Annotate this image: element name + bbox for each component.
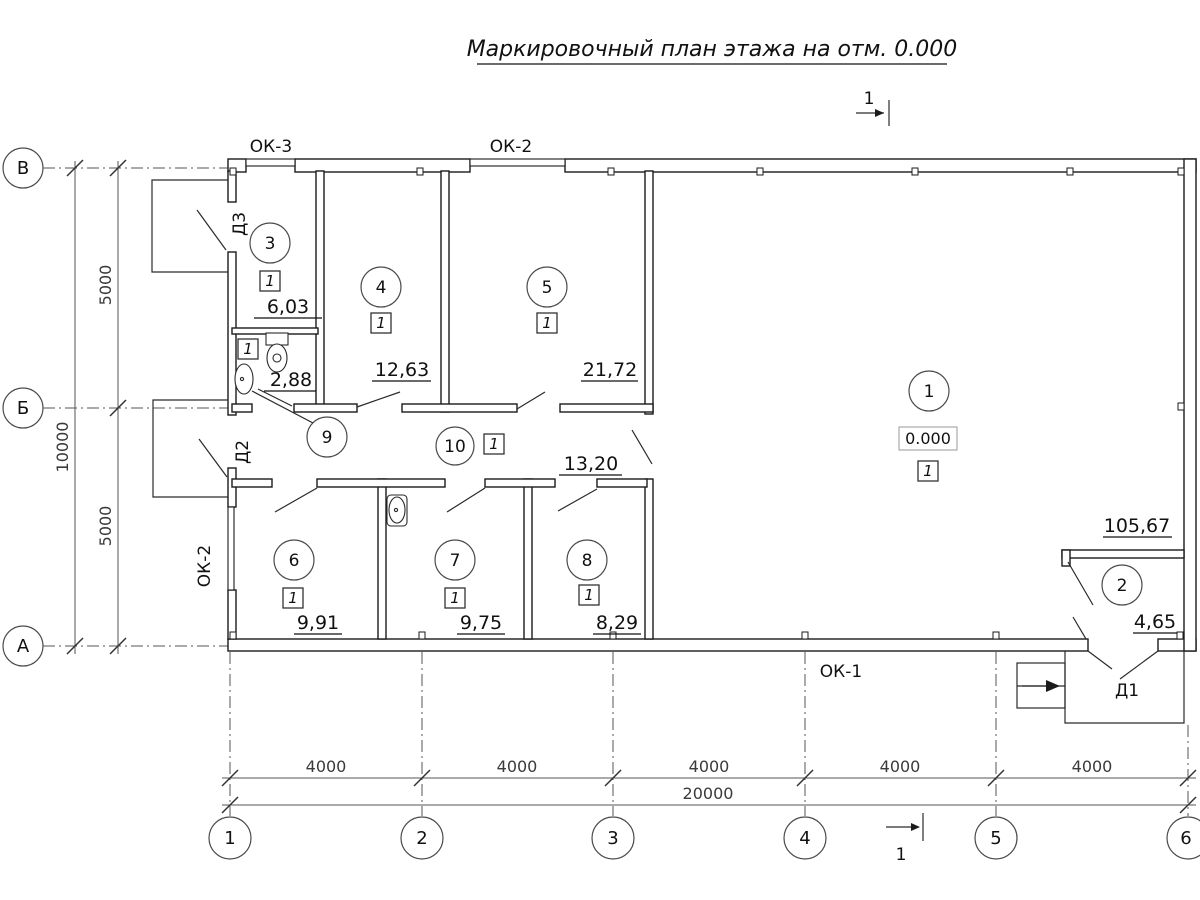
room-10-number: 10 xyxy=(444,437,466,457)
door-d2-leaf xyxy=(199,439,227,477)
dim-20000: 20000 xyxy=(683,784,734,803)
drawing-title: Маркировочный план этажа на отм. 0.000 xyxy=(467,37,958,62)
door-room4-leaf xyxy=(357,392,400,407)
dim-4000-1: 4000 xyxy=(306,757,347,776)
door-d3-leaf xyxy=(197,210,226,250)
axis-face-markers xyxy=(230,168,1184,639)
sink-room7-icon xyxy=(387,495,407,526)
axis-col-5-label: 5 xyxy=(990,828,1001,849)
room-2-area: 4,65 xyxy=(1134,611,1176,633)
room-10-area: 13,20 xyxy=(564,453,618,475)
room-8-finish: 1 xyxy=(584,586,594,604)
dim-4000-4: 4000 xyxy=(880,757,921,776)
room-9-area: 2,88 xyxy=(270,369,312,391)
room-7-number: 7 xyxy=(450,551,461,571)
axis-row-b-label: Б xyxy=(17,398,29,419)
door-room8-leaf xyxy=(558,489,597,511)
door-leaves xyxy=(197,210,1158,679)
section-mark-top-label: 1 xyxy=(864,89,875,109)
room-7-area: 9,75 xyxy=(460,612,502,634)
room-3-finish: 1 xyxy=(265,272,275,290)
elevation-value: 0.000 xyxy=(905,429,951,448)
room-9-finish: 1 xyxy=(243,340,253,358)
door-d1-leaf-right xyxy=(1120,651,1158,679)
dim-5000-bottom: 5000 xyxy=(96,506,115,547)
axis-col-4-label: 4 xyxy=(799,828,810,849)
room-10-finish: 1 xyxy=(489,435,499,453)
axis-col-2-label: 2 xyxy=(416,828,427,849)
room-3-number: 3 xyxy=(265,234,276,254)
room-4-area: 12,63 xyxy=(375,359,429,381)
door-d1-leaf-left xyxy=(1088,651,1112,669)
dim-5000-top: 5000 xyxy=(96,265,115,306)
sink-wc-icon xyxy=(235,364,253,394)
walls xyxy=(228,159,1196,651)
label-d2: Д2 xyxy=(233,440,253,464)
label-ok3: ОК-3 xyxy=(250,137,292,157)
window-ok2-left xyxy=(228,507,234,590)
room-6-number: 6 xyxy=(289,551,300,571)
entrance-steps xyxy=(1017,663,1065,708)
dim-10000: 10000 xyxy=(53,422,72,473)
door-room1-room2-leaf xyxy=(1068,562,1093,605)
room-2-number: 2 xyxy=(1117,576,1128,596)
floor-plan-drawing: Маркировочный план этажа на отм. 0.000 1 xyxy=(0,0,1200,900)
window-ok2-top xyxy=(470,159,565,166)
section-mark-bottom-label: 1 xyxy=(896,845,907,865)
door-room1-room2-jamb xyxy=(1073,617,1086,639)
room-8-number: 8 xyxy=(582,551,593,571)
room-6-finish: 1 xyxy=(288,589,298,607)
axis-col-6-label: 6 xyxy=(1180,828,1191,849)
door-room5-leaf xyxy=(517,392,545,409)
room-7-finish: 1 xyxy=(450,589,460,607)
label-ok1: ОК-1 xyxy=(820,662,862,682)
room-6-area: 9,91 xyxy=(297,612,339,634)
dim-4000-2: 4000 xyxy=(497,757,538,776)
door-room6-leaf xyxy=(275,488,317,512)
label-ok2-left: ОК-2 xyxy=(195,545,215,587)
door-room7-leaf xyxy=(447,488,485,512)
dim-4000-3: 4000 xyxy=(689,757,730,776)
label-d1: Д1 xyxy=(1115,681,1139,701)
door-corridor-room1-leaf xyxy=(632,430,652,464)
room-3-area: 6,03 xyxy=(267,296,309,318)
room-4-finish: 1 xyxy=(376,314,386,332)
entrance-arrow-icon xyxy=(1046,680,1060,692)
room-8-area: 8,29 xyxy=(596,612,638,634)
section-arrow-bottom-icon xyxy=(911,823,920,831)
room-1-finish: 1 xyxy=(923,462,933,480)
label-ok2-top: ОК-2 xyxy=(490,137,532,157)
porch-upper-left xyxy=(152,180,228,272)
room-1-area: 105,67 xyxy=(1104,515,1170,537)
axis-col-1-label: 1 xyxy=(224,828,235,849)
label-d3: Д3 xyxy=(230,212,250,236)
grid-axis-lines xyxy=(43,168,1188,816)
room-9-number: 9 xyxy=(322,428,333,448)
axis-row-a-label: А xyxy=(17,636,30,657)
window-ok3 xyxy=(246,159,295,166)
floor-plan-page: Маркировочный план этажа на отм. 0.000 1 xyxy=(0,0,1200,900)
room-1-number: 1 xyxy=(924,382,935,402)
axis-circles: В Б А 1 2 3 4 5 6 xyxy=(3,148,1200,859)
toilet-icon xyxy=(266,333,288,372)
room-5-number: 5 xyxy=(542,278,553,298)
room-4-number: 4 xyxy=(376,278,387,298)
room-5-finish: 1 xyxy=(542,314,552,332)
porch-lower-left xyxy=(153,400,228,497)
axis-row-v-label: В xyxy=(17,158,29,179)
dim-4000-5: 4000 xyxy=(1072,757,1113,776)
section-mark-top: 1 xyxy=(856,89,889,126)
section-mark-bottom: 1 xyxy=(886,813,923,865)
axis-col-3-label: 3 xyxy=(607,828,618,849)
room-5-area: 21,72 xyxy=(583,359,637,381)
dimension-labels: 10000 5000 5000 4000 4000 4000 4000 4000… xyxy=(53,265,1112,803)
section-arrow-top-icon xyxy=(875,109,884,117)
